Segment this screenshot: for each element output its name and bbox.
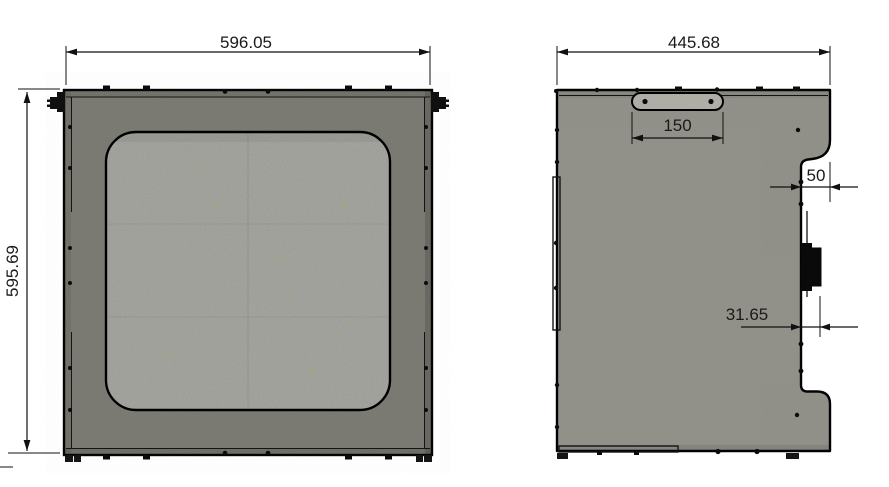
front-height-dim-label: 595.69 [3,211,23,331]
handle-hole-left [642,99,647,104]
front-width-dim-label: 596.05 [186,33,306,53]
front-window [106,132,390,410]
front-view [47,86,449,463]
side-width-dim-label: 445.68 [634,33,754,53]
side-view [553,87,830,460]
drawing-canvas [0,0,889,487]
handle-hole-right [708,99,713,104]
cad-drawing-page: 596.05 595.69 445.68 150 50 31.65 [0,0,889,487]
side-panel-shading [557,90,830,453]
notch-width-dim-label: 50 [796,166,836,186]
connector-offset-dim-label: 31.65 [705,305,789,325]
handle-slot [632,93,723,110]
slot-width-dim-label: 150 [650,116,705,136]
